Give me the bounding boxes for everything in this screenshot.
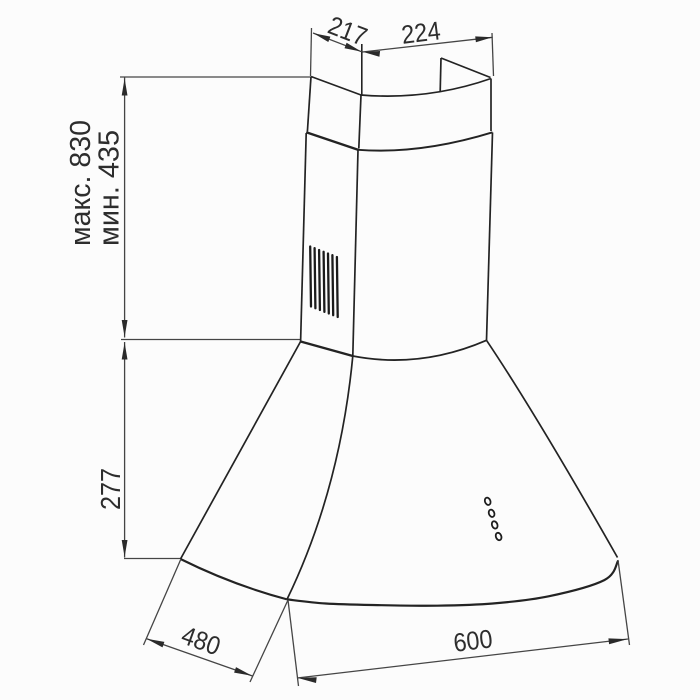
svg-text:224: 224 [400, 17, 442, 50]
svg-text:макс. 830: макс. 830 [65, 120, 97, 246]
svg-text:277: 277 [95, 468, 127, 510]
svg-text:мин. 435: мин. 435 [93, 130, 125, 246]
svg-text:600: 600 [452, 625, 494, 658]
